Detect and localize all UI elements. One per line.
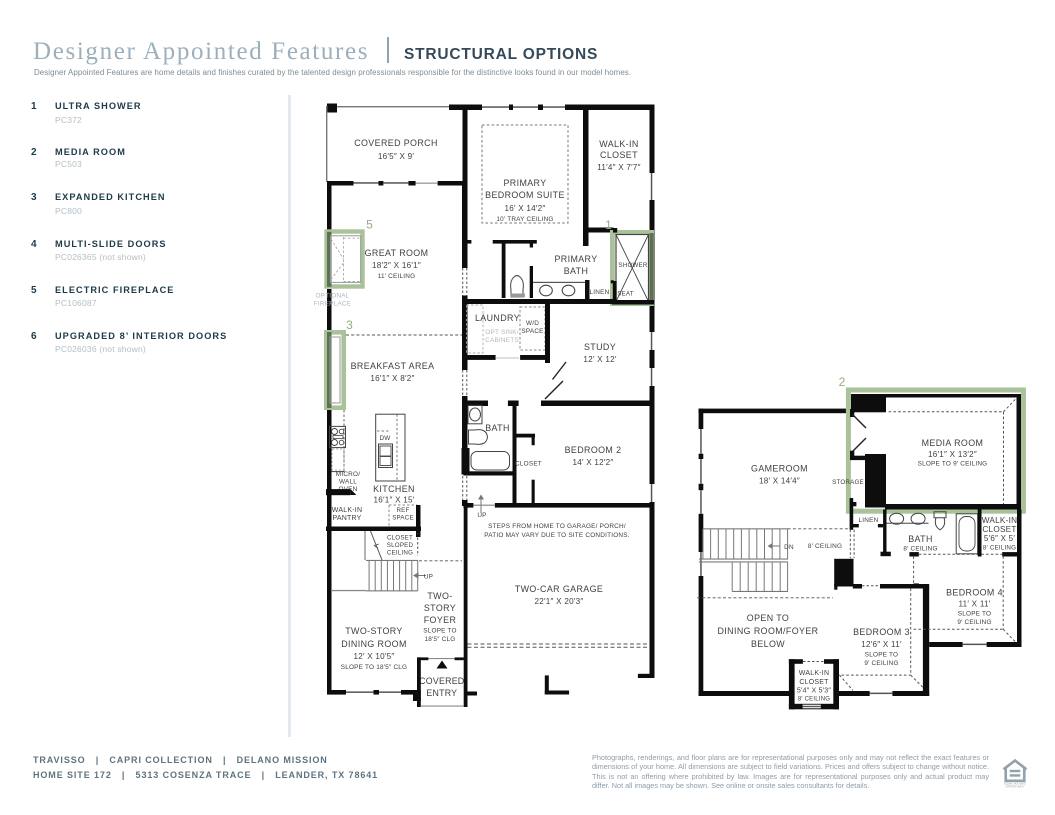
svg-text:8′ CEILING: 8′ CEILING [798, 697, 830, 703]
svg-text:SHOWER: SHOWER [618, 262, 647, 269]
svg-text:COVERED: COVERED [419, 676, 464, 686]
svg-text:STUDY: STUDY [584, 342, 616, 352]
svg-text:3: 3 [346, 318, 353, 332]
svg-text:TWO-: TWO- [427, 591, 452, 601]
svg-text:DINING ROOM: DINING ROOM [341, 639, 407, 649]
svg-text:TWO-CAR GARAGE: TWO-CAR GARAGE [515, 584, 603, 594]
svg-text:16′1″ X 15′: 16′1″ X 15′ [373, 496, 414, 505]
svg-text:BELOW: BELOW [751, 639, 785, 649]
svg-text:5: 5 [366, 218, 373, 232]
svg-text:9′ CEILING: 9′ CEILING [864, 660, 898, 667]
svg-text:WALL: WALL [339, 479, 357, 486]
svg-text:BEDROOM 2: BEDROOM 2 [565, 445, 622, 455]
svg-text:BEDROOM SUITE: BEDROOM SUITE [485, 190, 565, 200]
svg-text:CLOSET: CLOSET [982, 525, 1016, 534]
svg-text:WALK-IN: WALK-IN [332, 507, 362, 514]
svg-text:DINING ROOM/FOYER: DINING ROOM/FOYER [718, 626, 819, 636]
svg-text:DN: DN [784, 544, 794, 551]
svg-text:12′ X 12′: 12′ X 12′ [583, 355, 616, 364]
svg-text:GAMEROOM: GAMEROOM [751, 464, 808, 474]
svg-text:FIREPLACE: FIREPLACE [314, 301, 352, 308]
svg-text:CABINETS: CABINETS [485, 337, 519, 344]
svg-text:SLOPE TO: SLOPE TO [865, 652, 899, 659]
svg-text:OPT SINK/: OPT SINK/ [485, 329, 518, 336]
svg-text:WALK-IN: WALK-IN [799, 670, 829, 677]
svg-text:22′1″ X 20′3″: 22′1″ X 20′3″ [535, 597, 584, 606]
svg-text:STORY: STORY [424, 603, 456, 613]
svg-text:SPACE: SPACE [392, 515, 414, 522]
svg-text:18′2″ X 16′1″: 18′2″ X 16′1″ [372, 261, 421, 270]
svg-text:MICRO/: MICRO/ [336, 471, 360, 478]
svg-text:OPTIONAL: OPTIONAL [315, 293, 349, 300]
svg-text:LAUNDRY: LAUNDRY [475, 313, 520, 323]
svg-text:CLOSET: CLOSET [600, 150, 638, 160]
svg-text:MEDIA ROOM: MEDIA ROOM [922, 438, 984, 448]
svg-text:STORAGE: STORAGE [832, 479, 864, 486]
svg-text:PRIMARY: PRIMARY [554, 254, 597, 264]
svg-text:REF: REF [396, 507, 409, 514]
svg-text:1: 1 [605, 218, 612, 232]
svg-text:5′4″ X 5′3″: 5′4″ X 5′3″ [797, 688, 831, 695]
svg-text:PATIO MAY VARY DUE TO SITE CON: PATIO MAY VARY DUE TO SITE CONDITIONS. [484, 532, 629, 539]
svg-text:12′ X 10′5″: 12′ X 10′5″ [353, 652, 394, 661]
svg-text:16′1″ X 13′2″: 16′1″ X 13′2″ [928, 450, 977, 459]
svg-text:10′ TRAY CEILING: 10′ TRAY CEILING [496, 216, 553, 223]
svg-text:LINEN: LINEN [859, 517, 879, 524]
svg-text:OPPORTUNITY: OPPORTUNITY [1006, 784, 1025, 788]
svg-text:CLOSET: CLOSET [387, 535, 413, 542]
svg-text:TWO-STORY: TWO-STORY [345, 626, 403, 636]
svg-text:OPEN TO: OPEN TO [747, 613, 789, 623]
svg-text:14′ X 12′2″: 14′ X 12′2″ [572, 458, 613, 467]
svg-text:STEPS FROM HOME TO GARAGE/ POR: STEPS FROM HOME TO GARAGE/ PORCH/ [488, 523, 626, 530]
svg-text:SEAT: SEAT [617, 291, 634, 298]
svg-text:BATH: BATH [564, 266, 589, 276]
svg-text:ENTRY: ENTRY [426, 688, 457, 698]
svg-text:SPACE: SPACE [521, 328, 543, 335]
svg-text:SLOPE TO: SLOPE TO [423, 628, 457, 635]
svg-text:CLOSET: CLOSET [799, 679, 829, 686]
svg-text:COVERED PORCH: COVERED PORCH [354, 138, 438, 148]
svg-text:PRIMARY: PRIMARY [503, 178, 546, 188]
svg-text:SLOPED: SLOPED [387, 542, 414, 549]
svg-text:CLOSET: CLOSET [515, 461, 542, 468]
svg-text:BREAKFAST AREA: BREAKFAST AREA [351, 361, 435, 371]
svg-text:BATH: BATH [908, 534, 933, 544]
svg-text:16′ X 14′2″: 16′ X 14′2″ [504, 204, 545, 213]
svg-text:16′1″ X 8′2″: 16′1″ X 8′2″ [370, 374, 414, 383]
svg-text:UP: UP [477, 512, 486, 519]
svg-text:8′ CEILING: 8′ CEILING [808, 543, 842, 550]
svg-text:CEILING: CEILING [387, 550, 413, 557]
svg-text:WALK-IN: WALK-IN [599, 139, 638, 149]
svg-text:18′ X 14′4″: 18′ X 14′4″ [759, 477, 800, 486]
svg-text:UP: UP [424, 574, 433, 581]
svg-text:DW: DW [379, 435, 391, 442]
svg-text:18′5″ CLG: 18′5″ CLG [424, 636, 455, 643]
svg-text:SLOPE TO 18′5″ CLG: SLOPE TO 18′5″ CLG [341, 664, 408, 671]
svg-text:FOYER: FOYER [424, 615, 457, 625]
svg-text:8′ CEILING: 8′ CEILING [983, 545, 1016, 552]
svg-text:LINEN: LINEN [590, 289, 610, 296]
svg-text:5′6″ X 5′: 5′6″ X 5′ [984, 534, 1015, 543]
svg-text:GREAT ROOM: GREAT ROOM [365, 248, 429, 258]
svg-text:11′ X 11′: 11′ X 11′ [959, 600, 991, 609]
svg-text:BATH: BATH [485, 423, 510, 433]
svg-text:WALK-IN: WALK-IN [982, 516, 1018, 525]
svg-text:2: 2 [839, 375, 846, 389]
svg-text:KITCHEN: KITCHEN [373, 484, 415, 494]
svg-text:11′4″ X 7′7″: 11′4″ X 7′7″ [597, 163, 641, 172]
svg-text:9′ CEILING: 9′ CEILING [957, 619, 991, 626]
svg-text:BEDROOM 4: BEDROOM 4 [946, 588, 1003, 598]
svg-text:W/D: W/D [526, 320, 539, 327]
svg-text:12′6″ X 11′: 12′6″ X 11′ [861, 640, 902, 649]
svg-text:SLOPE TO: SLOPE TO [958, 611, 992, 618]
svg-text:SLOPE TO 9′ CEILING: SLOPE TO 9′ CEILING [918, 461, 988, 468]
svg-text:11′ CEILING: 11′ CEILING [378, 273, 416, 280]
svg-text:8′ CEILING: 8′ CEILING [903, 546, 937, 553]
svg-text:PANTRY: PANTRY [332, 515, 361, 522]
svg-text:16′5″ X 9′: 16′5″ X 9′ [378, 152, 415, 161]
svg-text:BEDROOM 3: BEDROOM 3 [853, 627, 910, 637]
